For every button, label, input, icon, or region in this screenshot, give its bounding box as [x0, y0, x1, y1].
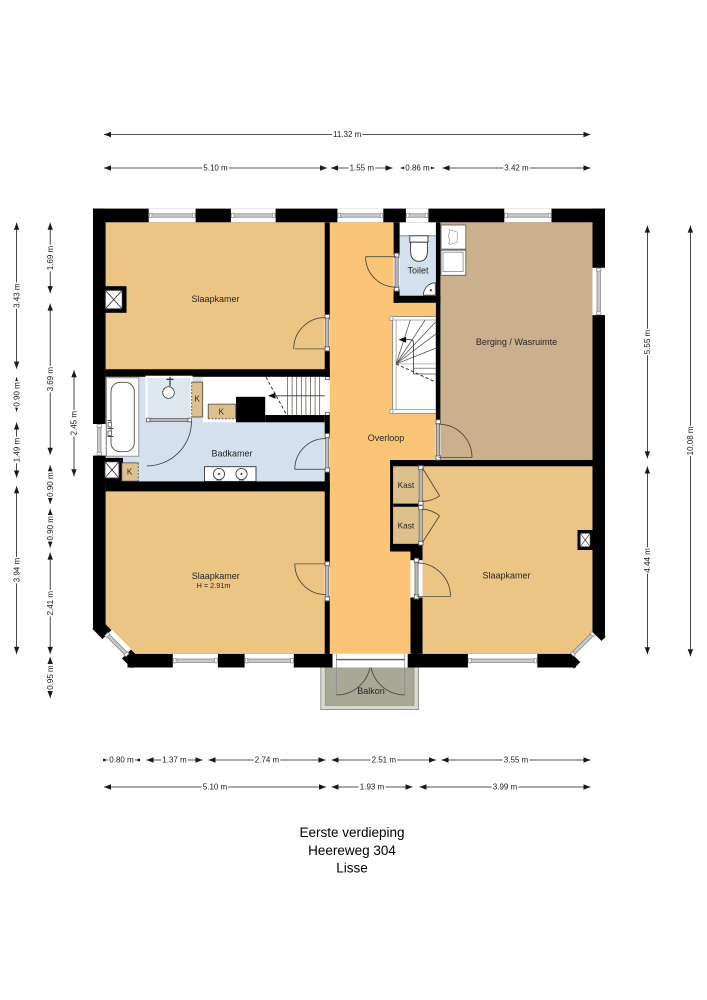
svg-text:Overloop: Overloop: [368, 433, 405, 443]
svg-text:Kast: Kast: [398, 520, 415, 530]
svg-text:0.90 m: 0.90 m: [46, 516, 55, 541]
svg-text:3.55 m: 3.55 m: [504, 756, 529, 765]
svg-text:5.10 m: 5.10 m: [203, 164, 228, 173]
svg-text:K: K: [127, 467, 133, 476]
svg-text:0.90 m: 0.90 m: [12, 382, 21, 407]
svg-text:2.74 m: 2.74 m: [255, 756, 280, 765]
svg-text:2.41 m: 2.41 m: [46, 591, 55, 616]
svg-text:Lisse: Lisse: [336, 861, 368, 876]
svg-text:Berging / Wasruimte: Berging / Wasruimte: [476, 337, 557, 347]
svg-text:Slaapkamer: Slaapkamer: [482, 570, 530, 580]
svg-text:Eerste verdieping: Eerste verdieping: [299, 825, 404, 840]
svg-text:10.08 m: 10.08 m: [686, 426, 695, 455]
svg-text:0.95 m: 0.95 m: [46, 665, 55, 690]
svg-text:5.55 m: 5.55 m: [643, 329, 652, 354]
svg-text:Heereweg 304: Heereweg 304: [308, 843, 396, 858]
svg-text:H = 2.91m: H = 2.91m: [197, 581, 231, 590]
svg-text:K: K: [219, 408, 225, 417]
svg-text:3.99 m: 3.99 m: [493, 783, 518, 792]
svg-text:0.80 m: 0.80 m: [109, 756, 134, 765]
svg-text:Kast: Kast: [398, 480, 415, 490]
svg-text:Toilet: Toilet: [407, 266, 429, 276]
svg-text:5.10 m: 5.10 m: [203, 783, 228, 792]
svg-text:Slaapkamer: Slaapkamer: [192, 571, 240, 581]
svg-text:0.86 m: 0.86 m: [405, 164, 430, 173]
svg-text:3.94 m: 3.94 m: [12, 558, 21, 583]
svg-text:0.90 m: 0.90 m: [46, 472, 55, 497]
svg-text:Slaapkamer: Slaapkamer: [191, 294, 239, 304]
svg-text:Badkamer: Badkamer: [211, 448, 252, 458]
svg-text:K: K: [195, 395, 201, 404]
svg-text:1.69 m: 1.69 m: [46, 245, 55, 270]
svg-text:2.45 m: 2.45 m: [70, 411, 79, 436]
svg-text:2.51 m: 2.51 m: [372, 756, 397, 765]
svg-text:3.69 m: 3.69 m: [46, 367, 55, 392]
svg-text:1.93 m: 1.93 m: [360, 783, 385, 792]
svg-text:Balkon: Balkon: [357, 686, 385, 696]
svg-text:4.44 m: 4.44 m: [643, 548, 652, 573]
svg-text:1.55 m: 1.55 m: [350, 164, 375, 173]
svg-text:1.49 m: 1.49 m: [12, 437, 21, 462]
svg-text:11.32 m: 11.32 m: [333, 130, 362, 139]
svg-text:3.42 m: 3.42 m: [504, 164, 529, 173]
svg-text:1.37 m: 1.37 m: [162, 756, 187, 765]
svg-text:3.43 m: 3.43 m: [12, 283, 21, 308]
